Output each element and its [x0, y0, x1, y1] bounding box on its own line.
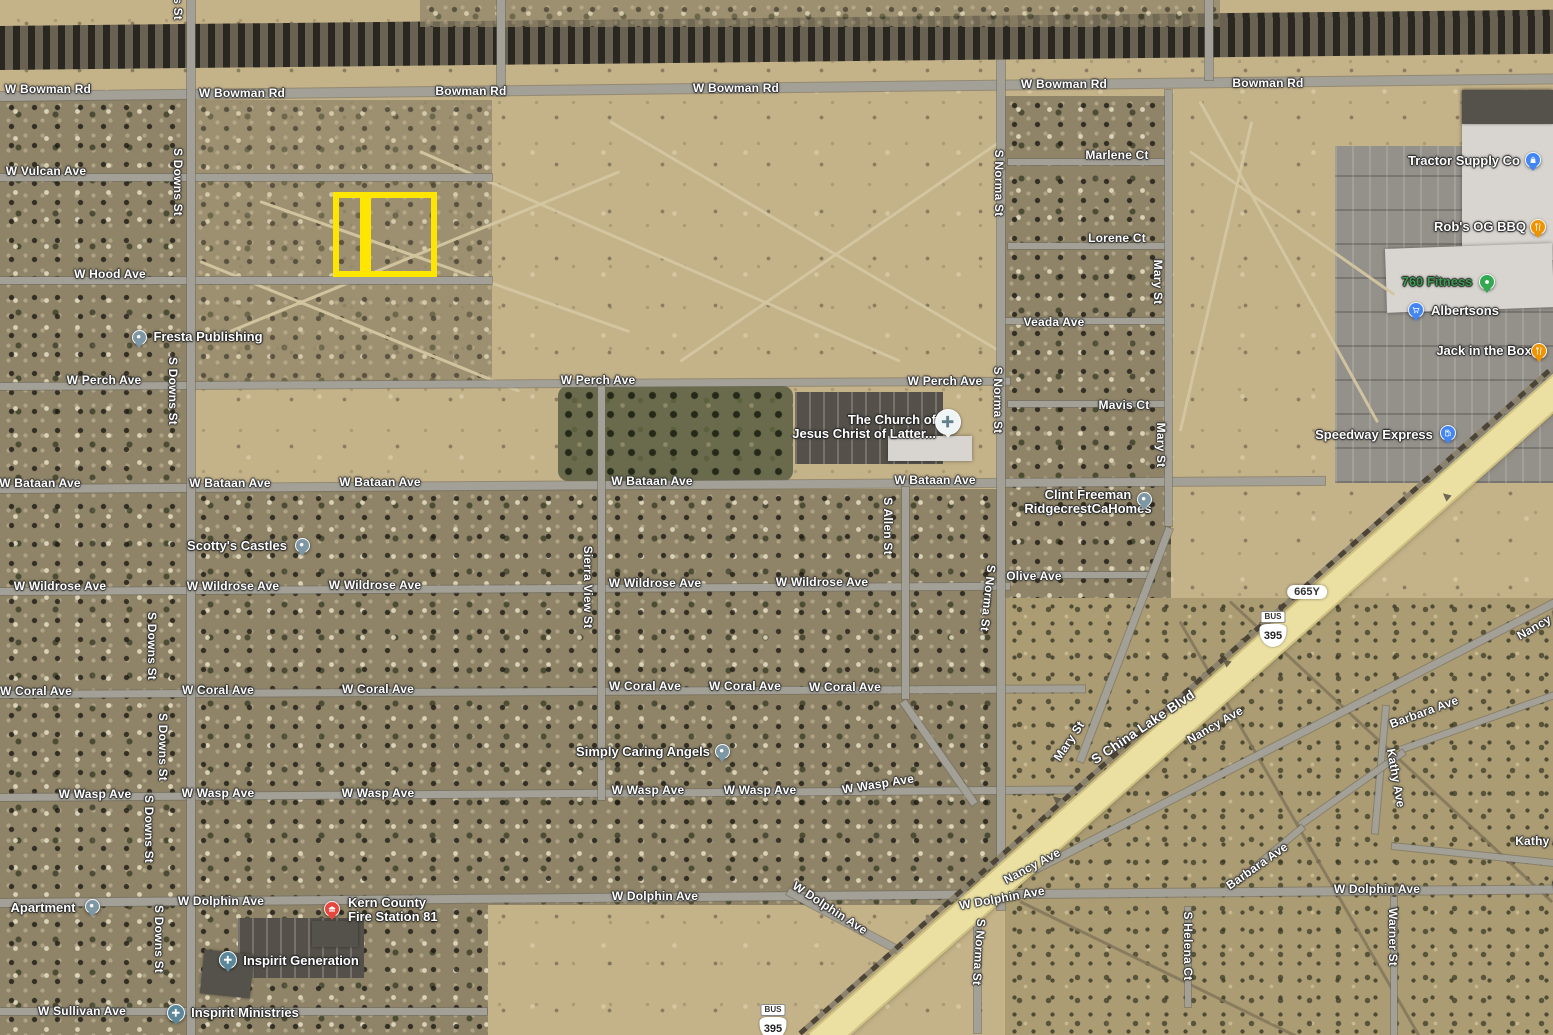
- route-665y-shield-icon: 665Y: [1287, 585, 1327, 599]
- shield-number: 395: [760, 1017, 787, 1035]
- shield-banner: BUS: [1261, 611, 1286, 623]
- map-canvas[interactable]: W Bowman RdW Bowman RdBowman RdW Bowman …: [0, 0, 1553, 1035]
- shield-banner: BUS: [761, 1004, 786, 1016]
- us-395-business-route-shield-icon: BUS395: [760, 1004, 787, 1035]
- shield-number: 395: [1260, 624, 1287, 647]
- us-395-business-route-shield-icon: BUS395: [1260, 611, 1287, 647]
- shield-layer: BUS395BUS395665Y: [0, 0, 1553, 1035]
